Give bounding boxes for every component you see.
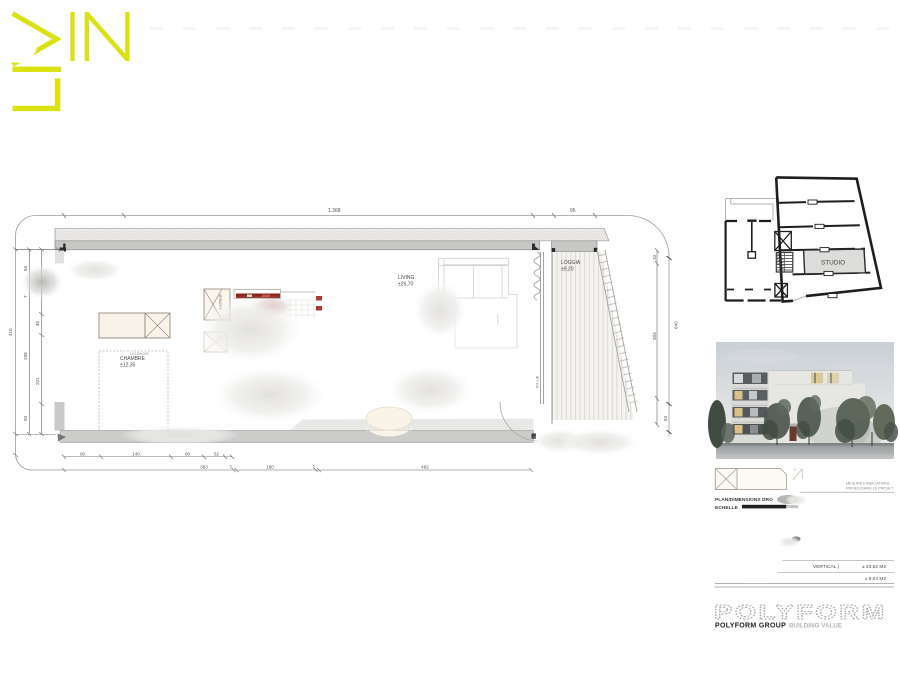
svg-text:393: 393 [652, 332, 657, 340]
svg-text:45: 45 [35, 320, 40, 326]
svg-text:± 9,04 M2: ± 9,04 M2 [865, 576, 887, 582]
svg-text:LOGGIA: LOGGIA [561, 260, 581, 266]
svg-text:POLYFORM GROUP: POLYFORM GROUP [715, 623, 786, 630]
svg-text:1.368: 1.368 [328, 208, 341, 214]
svg-text:93: 93 [23, 415, 28, 421]
svg-text:PRISES DANS LE PROJET: PRISES DANS LE PROJET [846, 486, 894, 490]
svg-text:POLYFORM: POLYFORM [714, 602, 887, 624]
svg-text:FIX-LIB: FIX-LIB [536, 375, 540, 388]
svg-text:7: 7 [23, 295, 28, 298]
svg-text:MESURES INDICATIVES: MESURES INDICATIVES [846, 482, 890, 486]
svg-text:LIVING: LIVING [398, 275, 415, 281]
svg-text:140: 140 [132, 451, 140, 456]
svg-text:BUILDING VALUE: BUILDING VALUE [789, 623, 842, 630]
svg-text:201: 201 [35, 377, 40, 385]
svg-text:CHAMBRE: CHAMBRE [120, 356, 146, 362]
svg-text:±26,70: ±26,70 [398, 282, 413, 288]
svg-text:PLAN/DIMENSIONS DRO: PLAN/DIMENSIONS DRO [715, 497, 773, 503]
svg-text:10: 10 [652, 254, 657, 260]
svg-text:± 43,52 M2: ± 43,52 M2 [862, 564, 886, 570]
svg-text:52: 52 [214, 451, 220, 456]
svg-text:95: 95 [570, 208, 576, 214]
svg-text:90: 90 [80, 451, 86, 456]
svg-text:298: 298 [23, 352, 28, 360]
svg-text:180: 180 [266, 465, 274, 470]
svg-text:±9,20: ±9,20 [561, 267, 574, 273]
svg-text:±12,35: ±12,35 [120, 363, 135, 369]
svg-text:ECHELLE: ECHELLE [715, 505, 739, 511]
svg-text:84: 84 [663, 415, 668, 421]
svg-text:7: 7 [229, 465, 232, 470]
svg-text:383: 383 [200, 465, 208, 470]
svg-text:416: 416 [8, 328, 13, 336]
svg-text:7: 7 [312, 465, 315, 470]
svg-text:VERTICAL ): VERTICAL ) [813, 564, 840, 570]
svg-text:80: 80 [185, 451, 191, 456]
svg-text:STUDIO: STUDIO [821, 260, 845, 267]
svg-text:640: 640 [674, 321, 679, 329]
svg-text:482: 482 [421, 465, 429, 470]
